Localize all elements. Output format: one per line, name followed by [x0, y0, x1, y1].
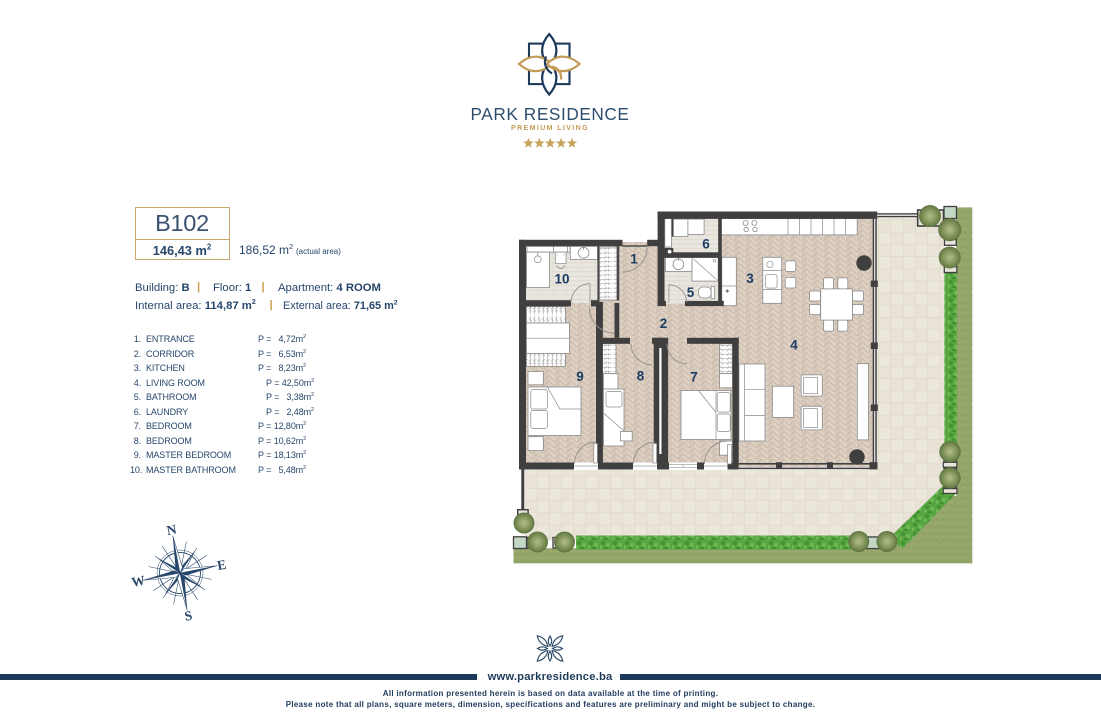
svg-text:W: W [130, 572, 147, 589]
svg-text:1: 1 [630, 252, 638, 267]
svg-text:3: 3 [746, 271, 754, 286]
svg-text:6: 6 [702, 237, 710, 252]
svg-text:10: 10 [554, 272, 569, 287]
svg-text:8: 8 [637, 369, 645, 384]
svg-text:2: 2 [660, 316, 668, 331]
svg-text:4: 4 [790, 338, 798, 353]
svg-text:S: S [183, 608, 193, 624]
svg-text:E: E [216, 557, 228, 573]
svg-text:5: 5 [687, 285, 695, 300]
svg-text:7: 7 [690, 370, 698, 385]
svg-text:N: N [165, 521, 178, 538]
svg-text:9: 9 [576, 369, 584, 384]
